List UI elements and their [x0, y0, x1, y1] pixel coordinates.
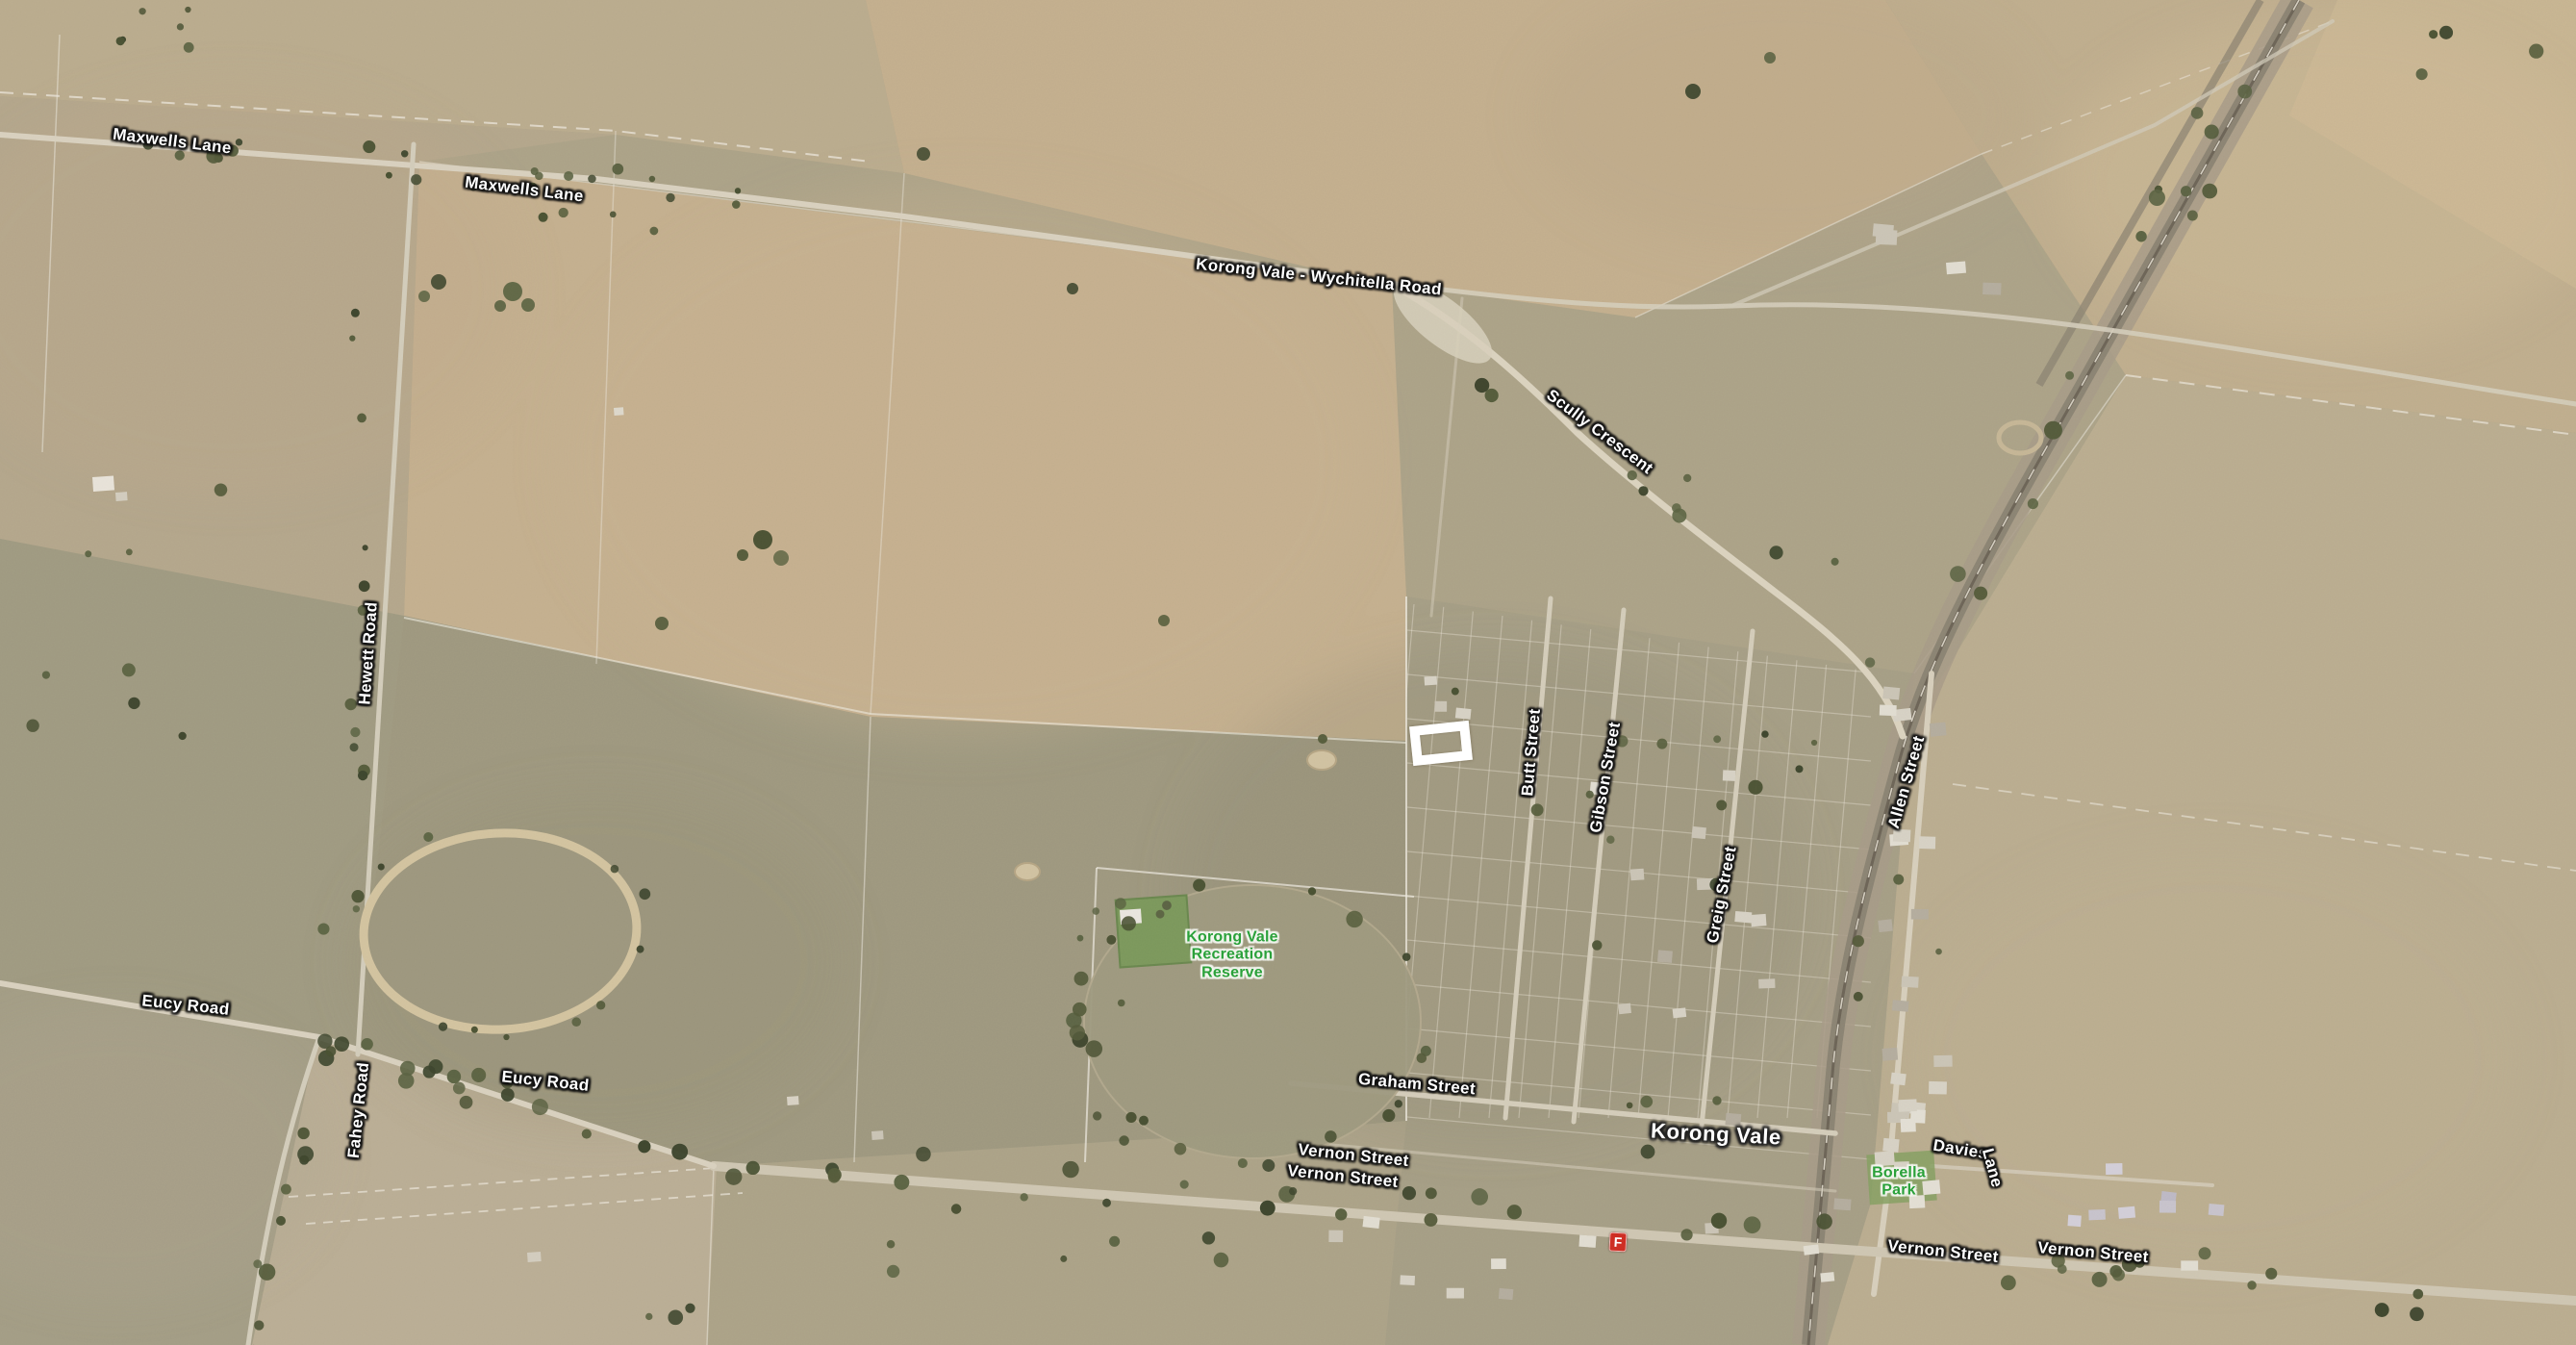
satellite-imagery	[0, 0, 2576, 1345]
fuel-marker-letter: F	[1613, 1234, 1622, 1250]
fuel-station-marker[interactable]: F	[1608, 1232, 1627, 1253]
selected-parcel-marker[interactable]	[1409, 721, 1473, 766]
satellite-map[interactable]: Maxwells Lane Maxwells Lane Korong Vale …	[0, 0, 2576, 1345]
